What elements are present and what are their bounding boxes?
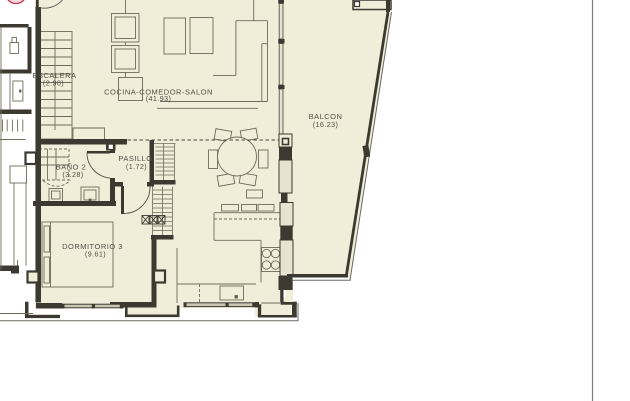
- svg-text:(9.61): (9.61): [85, 250, 106, 259]
- svg-text:(3.28): (3.28): [62, 170, 83, 179]
- svg-text:(1.72): (1.72): [126, 162, 147, 171]
- svg-text:(2.90): (2.90): [43, 79, 64, 88]
- svg-text:(41.93): (41.93): [146, 94, 172, 103]
- svg-text:(16.23): (16.23): [313, 120, 339, 129]
